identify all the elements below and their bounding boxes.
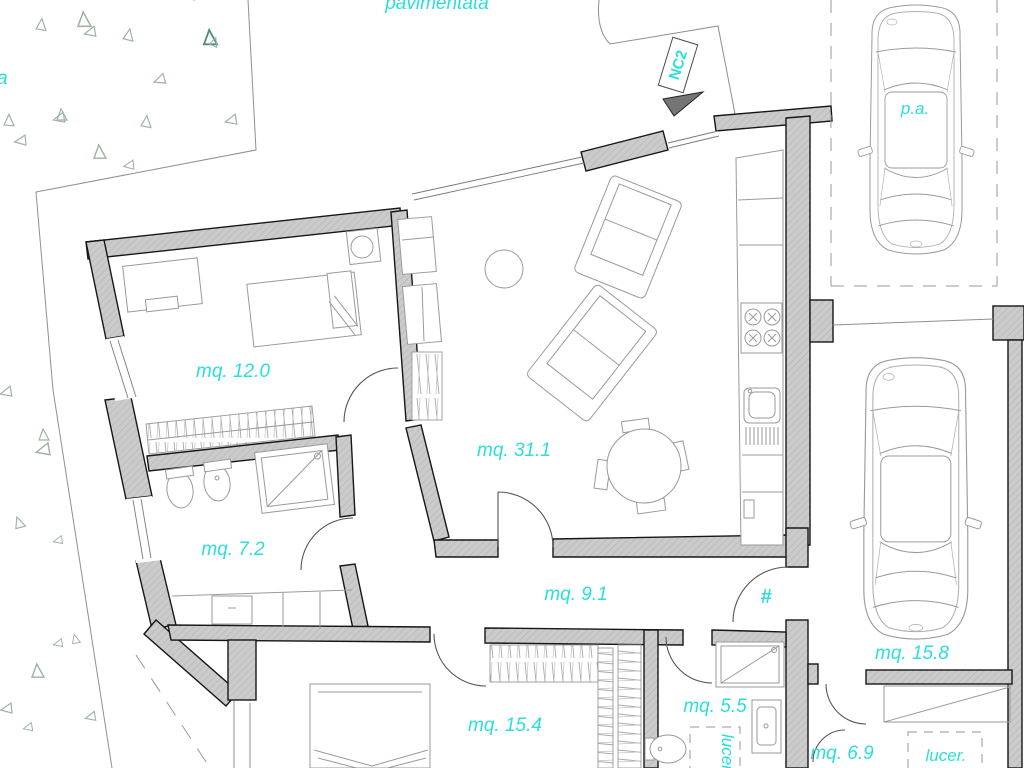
shower-bathroom1: [255, 444, 335, 513]
boundary-fence-lines: [234, 701, 250, 768]
car-parking: [857, 5, 974, 254]
door-bathroom1: [301, 518, 353, 570]
bathroom1-fixtures: [165, 444, 352, 629]
ottoman: [485, 250, 523, 288]
storage-ramp: [884, 686, 1010, 722]
toilet-bathroom2: [645, 735, 686, 763]
label-garage: mq. 15.8: [875, 643, 949, 664]
bedroom2-furniture: [310, 645, 641, 768]
label-parking: p.a.: [900, 99, 929, 118]
window-living-top: [412, 131, 719, 200]
label-hallway: mq. 9.1: [544, 584, 607, 605]
sofa-2: [526, 283, 659, 422]
label-pavimentata: pavimentata: [384, 0, 489, 14]
label-storage: mq. 6.9: [810, 743, 874, 764]
dining-table: [594, 418, 689, 514]
label-hash: #: [760, 586, 772, 608]
label-skylight-vertical: lucer.: [718, 734, 737, 768]
door-bedroom1: [344, 368, 398, 422]
cabinet-hatched: [412, 352, 442, 420]
wardrobe-bedroom2-top: [490, 645, 598, 682]
window-left-1: [106, 336, 136, 401]
sofa-1: [573, 175, 682, 300]
wardrobe-bedroom2-side2: [618, 645, 641, 768]
door-living: [498, 492, 553, 547]
label-skylight-right: lucer.: [926, 746, 967, 765]
kitchen-counter: [736, 150, 783, 545]
label-bedroom2: mq. 15.4: [468, 715, 542, 736]
label-bathroom2: mq. 5.5: [683, 696, 747, 717]
door-bedroom2: [434, 634, 486, 686]
floor-plan-canvas: NC2: [0, 0, 1024, 768]
label-bathroom1: mq. 7.2: [201, 539, 265, 560]
garage-door-line: [833, 319, 993, 325]
bedroom1-furniture: [123, 228, 381, 454]
door-storage: [826, 684, 866, 724]
label-bedroom1: mq. 12.0: [196, 361, 270, 382]
car-garage: [850, 358, 982, 639]
label-edge-letter: a: [0, 68, 8, 89]
entrance-arrow-icon: [663, 92, 703, 116]
window-left-2: [126, 496, 162, 563]
label-living: mq. 31.1: [477, 440, 551, 461]
entrance-label-nc2: NC2: [658, 37, 697, 92]
living-furniture: [398, 150, 783, 545]
wardrobe-bedroom2-side: [598, 648, 613, 768]
